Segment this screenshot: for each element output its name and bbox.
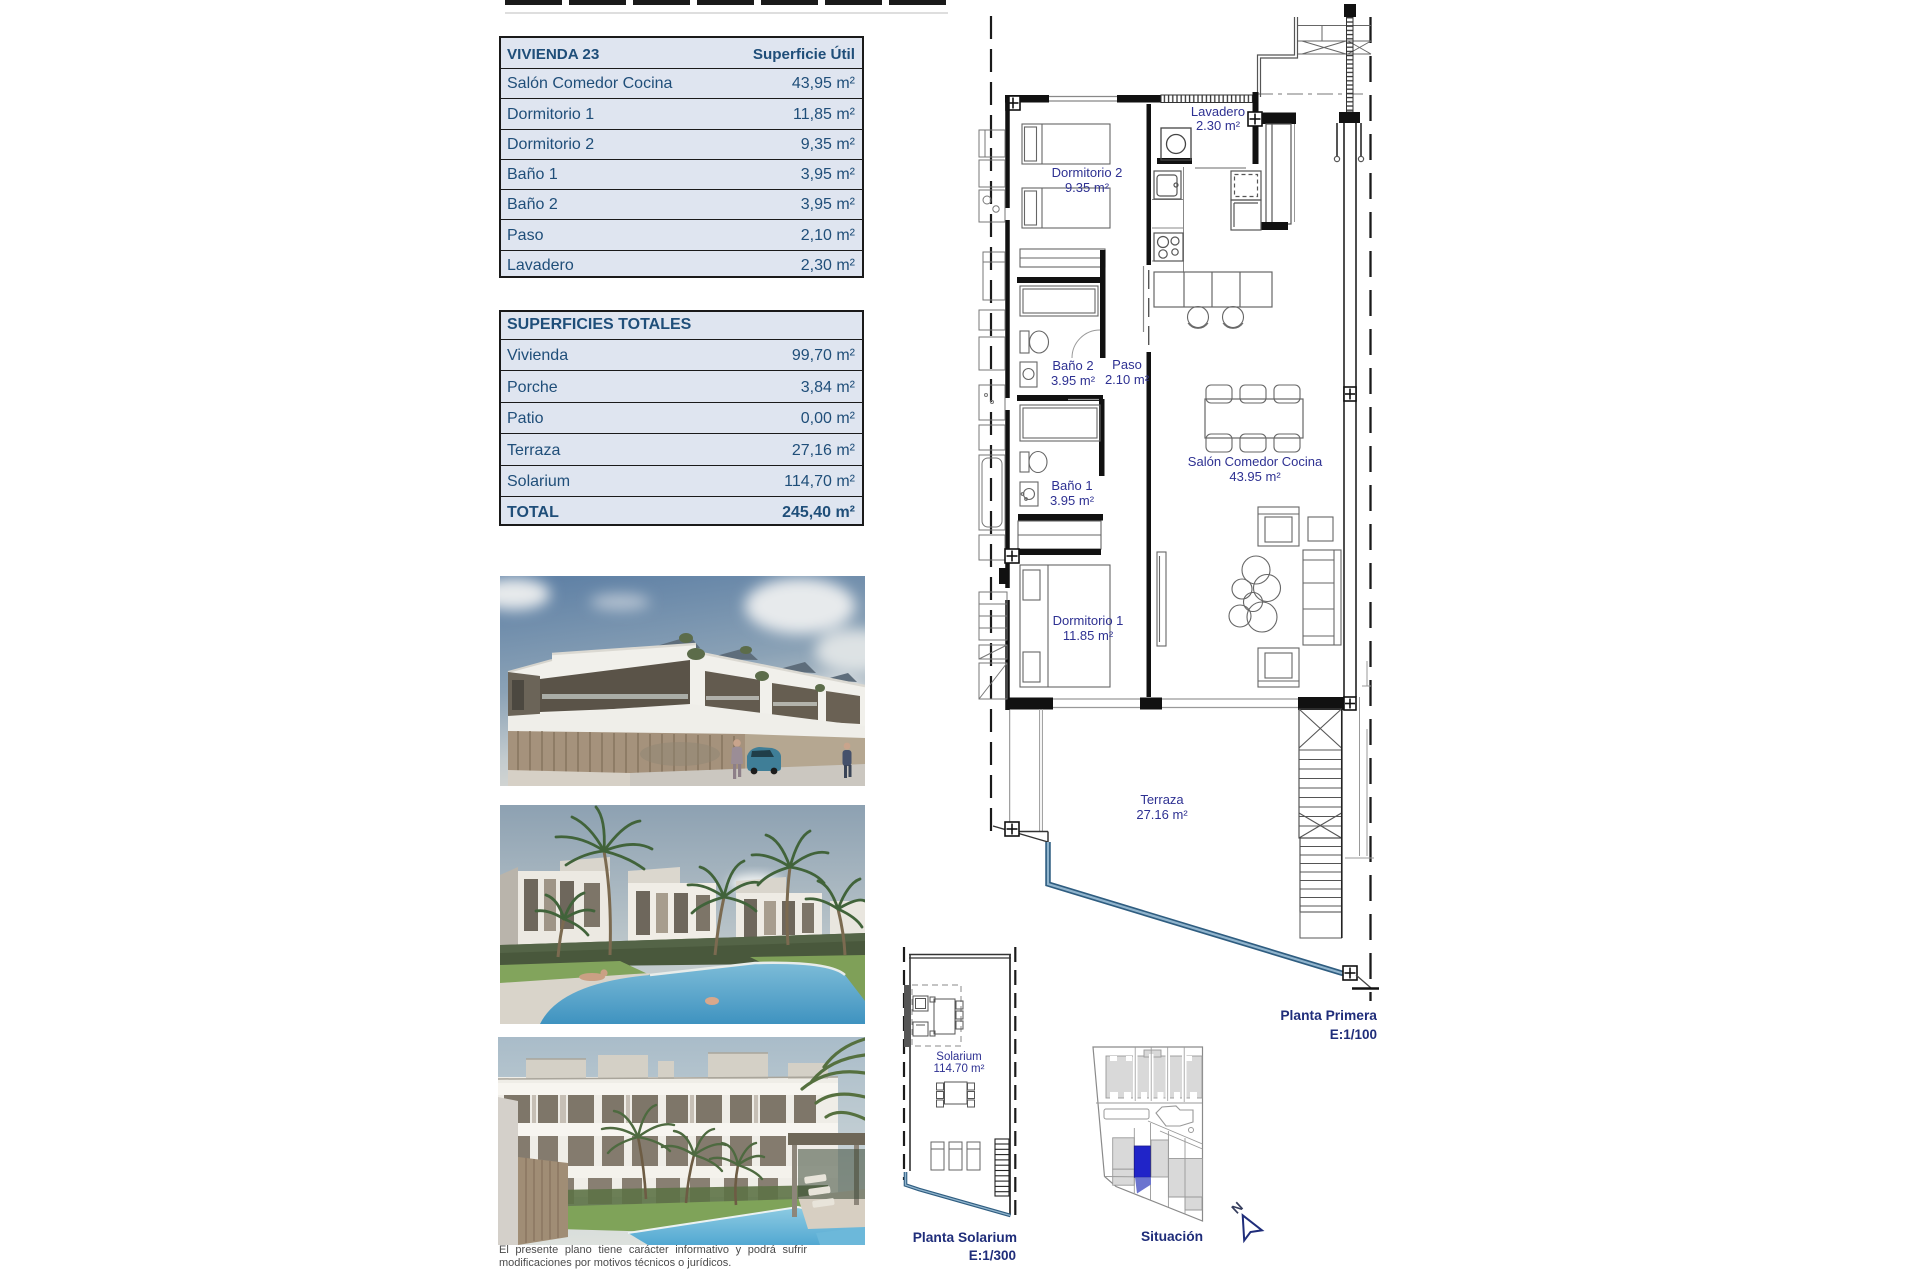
svg-text:2.10 m²: 2.10 m² [1105,372,1150,387]
svg-text:114.70 m²: 114.70 m² [934,1063,985,1075]
svg-text:43.95 m²: 43.95 m² [1229,469,1281,484]
svg-text:Salón Comedor Cocina: Salón Comedor Cocina [1188,454,1323,469]
svg-text:Terraza: Terraza [1140,792,1184,807]
svg-text:11.85 m²: 11.85 m² [1063,628,1114,643]
svg-text:Lavadero: Lavadero [1191,104,1245,119]
svg-text:Dormitorio 1: Dormitorio 1 [1053,613,1124,628]
svg-text:Dormitorio 2: Dormitorio 2 [1052,165,1123,180]
svg-text:3.95 m²: 3.95 m² [1050,493,1095,508]
svg-text:Solarium: Solarium [936,1051,981,1063]
svg-text:27.16 m²: 27.16 m² [1136,807,1188,822]
svg-text:2.30 m²: 2.30 m² [1196,118,1241,133]
svg-text:N: N [1229,1199,1246,1217]
svg-text:9.35 m²: 9.35 m² [1065,180,1110,195]
svg-text:Baño 2: Baño 2 [1052,358,1093,373]
svg-text:Baño 1: Baño 1 [1051,478,1092,493]
svg-text:Paso: Paso [1112,357,1142,372]
svg-text:3.95 m²: 3.95 m² [1051,373,1096,388]
